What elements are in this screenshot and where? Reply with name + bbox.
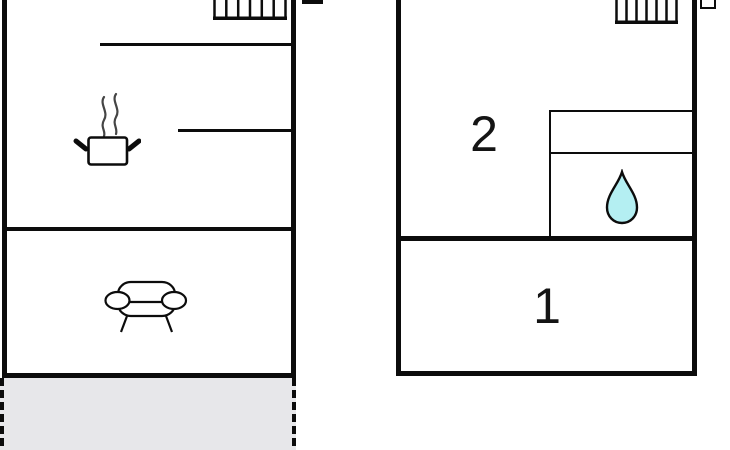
left-unit-wall-west — [2, 0, 7, 378]
right-unit-wall-south — [396, 371, 697, 376]
left-unit-wall-east — [291, 0, 296, 378]
room-1-label: 1 — [523, 278, 571, 334]
water-drop-shape — [607, 172, 637, 223]
right-unit-wall-mid — [396, 236, 697, 241]
stairs-icon — [615, 0, 678, 24]
floorplan-canvas: 2 1 — [0, 0, 730, 450]
cooking-pot-icon — [73, 90, 141, 168]
bathroom-wall-west — [549, 110, 551, 238]
stairs-icon — [213, 0, 287, 20]
right-unit-wall-east — [692, 0, 697, 376]
water-drop-icon — [604, 169, 640, 225]
bathroom-shelf-partition — [549, 152, 692, 154]
sofa-icon — [104, 277, 188, 333]
wall-stub — [302, 0, 323, 4]
bathroom-wall-north — [549, 110, 692, 112]
left-unit-wall-mid — [2, 227, 296, 231]
wall-stub-box — [700, 0, 716, 9]
left-unit-partition-upper — [100, 43, 291, 46]
room-2-label: 2 — [460, 106, 508, 162]
left-unit-partition-lower — [178, 129, 291, 132]
terrace-area — [0, 378, 296, 450]
right-unit-wall-west — [396, 0, 401, 376]
steam-icon — [103, 94, 118, 136]
